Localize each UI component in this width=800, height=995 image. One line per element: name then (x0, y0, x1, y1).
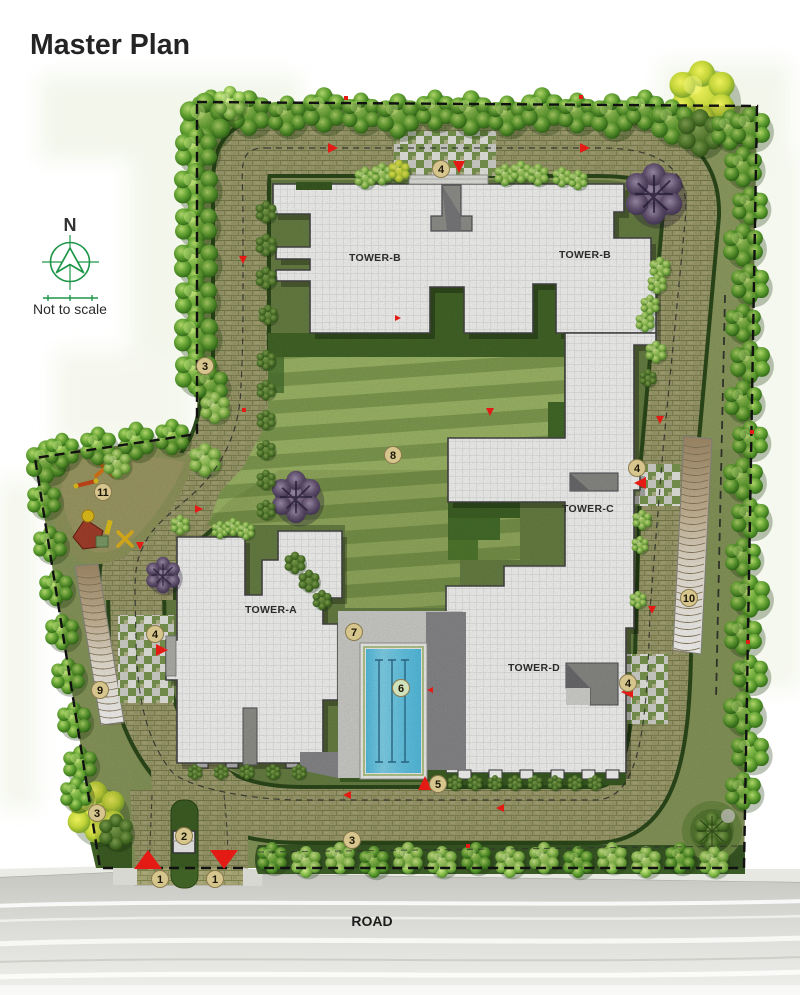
svg-text:6: 6 (398, 683, 404, 695)
svg-text:1: 1 (212, 874, 218, 886)
svg-text:7: 7 (351, 627, 357, 639)
svg-text:TOWER-B: TOWER-B (559, 249, 611, 261)
svg-text:4: 4 (438, 164, 445, 176)
svg-text:TOWER-A: TOWER-A (245, 604, 297, 616)
svg-text:1: 1 (157, 874, 163, 886)
svg-text:4: 4 (152, 629, 159, 641)
svg-text:Not to scale: Not to scale (33, 301, 107, 317)
svg-text:3: 3 (349, 835, 355, 847)
svg-text:ROAD: ROAD (351, 913, 392, 929)
svg-text:2: 2 (181, 831, 187, 843)
svg-text:8: 8 (390, 450, 396, 462)
svg-text:4: 4 (625, 678, 632, 690)
svg-text:Master Plan: Master Plan (30, 29, 190, 61)
svg-text:9: 9 (97, 685, 103, 697)
svg-text:TOWER-D: TOWER-D (508, 662, 560, 674)
svg-text:10: 10 (683, 593, 695, 605)
svg-text:N: N (64, 215, 77, 235)
svg-text:3: 3 (94, 808, 100, 820)
svg-text:TOWER-C: TOWER-C (562, 503, 614, 515)
svg-text:5: 5 (435, 779, 441, 791)
svg-text:11: 11 (97, 487, 109, 499)
svg-text:TOWER-B: TOWER-B (349, 252, 401, 264)
svg-text:4: 4 (634, 463, 641, 475)
svg-text:3: 3 (202, 361, 208, 373)
